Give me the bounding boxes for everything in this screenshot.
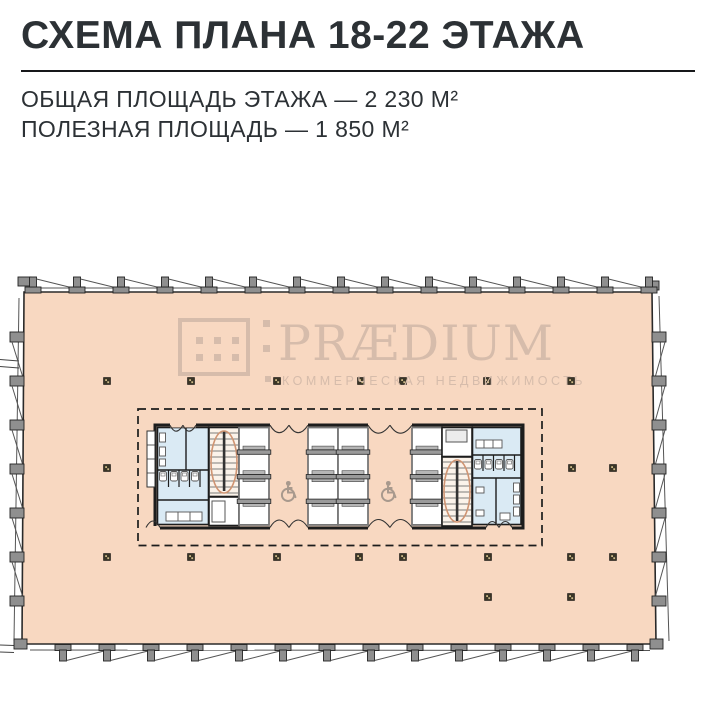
elevator-banks bbox=[237, 428, 444, 525]
floor-plan-page: СХЕМА ПЛАНА 18-22 ЭТАЖА ОБЩАЯ ПЛОЩАДЬ ЭТ… bbox=[0, 0, 716, 702]
wc-block-right bbox=[473, 428, 522, 525]
stairwell-left bbox=[209, 428, 239, 497]
floor-plan-drawing bbox=[0, 0, 716, 702]
stairwell-right bbox=[442, 457, 472, 526]
building-core bbox=[146, 424, 523, 531]
